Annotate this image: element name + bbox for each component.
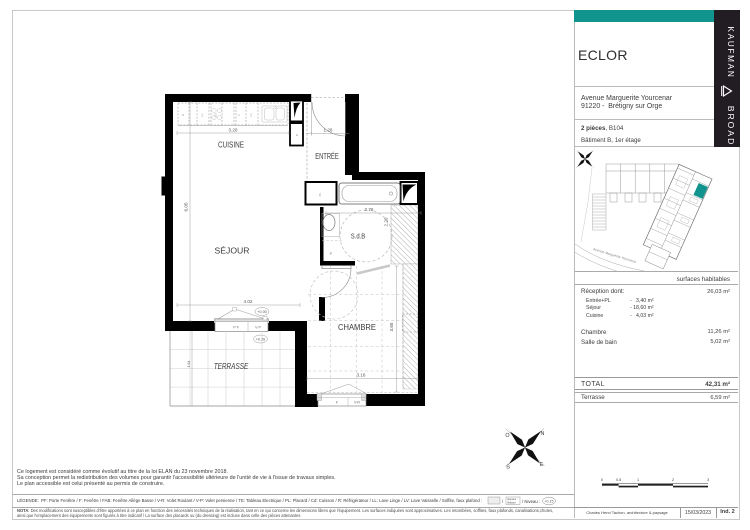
svg-text:F: F: [237, 114, 241, 116]
svg-text:BROAD: BROAD: [726, 106, 736, 147]
svg-text:CU: CU: [214, 113, 218, 117]
svg-text:2.76: 2.76: [365, 207, 374, 212]
svg-text:4.02: 4.02: [244, 299, 253, 304]
svg-text:SÉJOUR: SÉJOUR: [215, 246, 250, 256]
svg-text:V-R: V-R: [354, 401, 360, 405]
svg-text:CUISINE: CUISINE: [218, 141, 244, 150]
svg-text:+0.00: +0.00: [257, 310, 267, 314]
svg-text:2.20: 2.20: [384, 217, 389, 226]
svg-text:3.65: 3.65: [389, 322, 394, 331]
svg-text:Avenue Marguerite Yourcenar: Avenue Marguerite Yourcenar: [593, 247, 638, 264]
svg-text:/: /: [502, 499, 504, 504]
svg-text:LV: LV: [249, 113, 253, 116]
svg-text:1.26: 1.26: [324, 128, 333, 133]
svg-text:+0.15: +0.15: [544, 500, 553, 504]
svg-text:1.64: 1.64: [187, 361, 191, 368]
svg-text:S.d.B: S.d.B: [351, 232, 366, 241]
svg-text:3: 3: [707, 478, 709, 482]
svg-text:O: O: [505, 433, 509, 439]
svg-text:N: N: [541, 431, 545, 437]
svg-text:/ Niveau :: / Niveau :: [522, 499, 540, 504]
svg-text:0: 0: [601, 478, 603, 482]
svg-text:2: 2: [672, 478, 674, 482]
svg-text:KAUFMAN: KAUFMAN: [726, 27, 735, 79]
svg-text:1: 1: [637, 478, 639, 482]
svg-text:PL: PL: [318, 192, 322, 196]
svg-text:P F: P F: [233, 326, 239, 330]
svg-text:LL: LL: [200, 113, 204, 117]
svg-text:+0.26: +0.26: [256, 338, 266, 342]
svg-text:0.5: 0.5: [616, 478, 621, 482]
svg-text:Battant: Battant: [508, 500, 516, 504]
svg-text:3.20: 3.20: [229, 128, 238, 133]
svg-text:V P: V P: [255, 326, 261, 330]
svg-text:P: P: [330, 251, 333, 256]
svg-text:R: R: [181, 113, 185, 116]
svg-text:ENTRÉE: ENTRÉE: [315, 152, 339, 161]
svg-text:6.05: 6.05: [184, 202, 189, 211]
svg-text:3.16: 3.16: [357, 373, 366, 378]
svg-text:S: S: [506, 465, 510, 471]
svg-text:E: E: [540, 462, 544, 468]
svg-text:TERRASSE: TERRASSE: [214, 362, 249, 371]
svg-text:CHAMBRE: CHAMBRE: [338, 322, 376, 332]
